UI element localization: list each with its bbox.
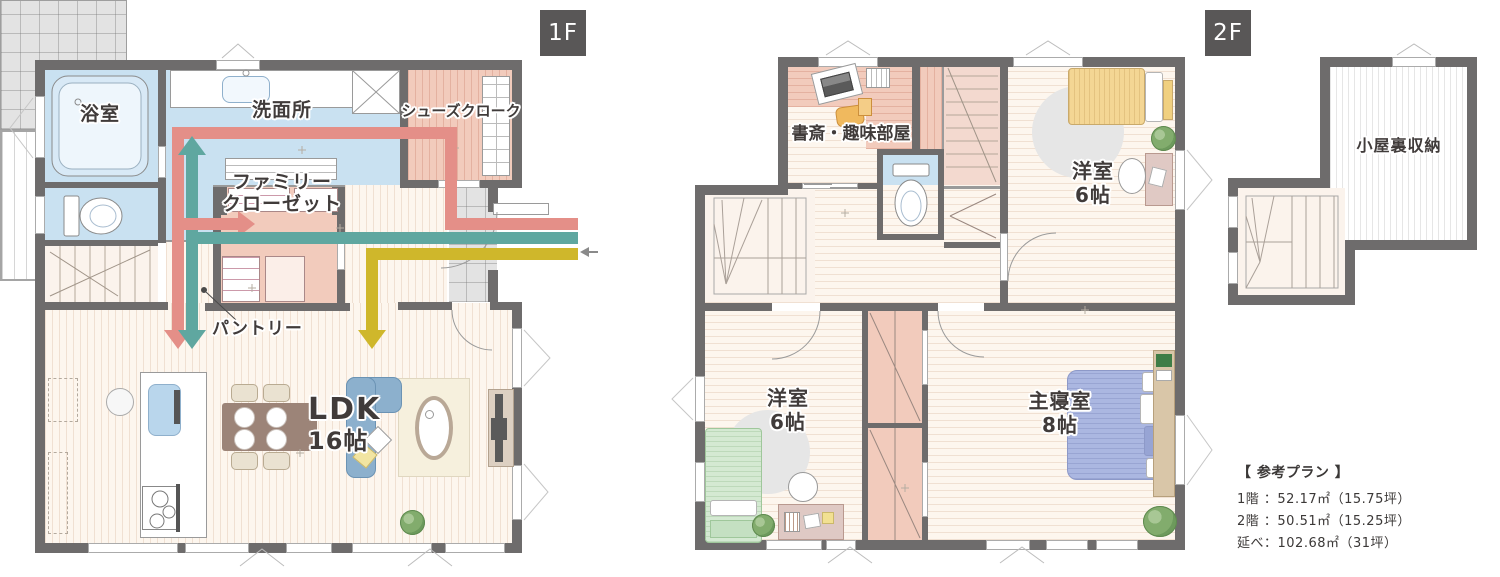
wall-line (944, 186, 1000, 189)
flow-arrow-pink (445, 218, 578, 230)
wall (398, 302, 452, 310)
pillow (1145, 72, 1163, 122)
room-bath (45, 70, 158, 182)
plate (266, 407, 287, 428)
plant-icon (400, 510, 425, 535)
window (185, 543, 249, 553)
chair (788, 472, 818, 502)
attic-stairs-floor (1330, 188, 1345, 240)
wall (1345, 245, 1355, 305)
window (35, 196, 45, 234)
sliding-door-gap (802, 183, 858, 189)
arrowhead-down-yellow (358, 330, 386, 349)
wall (877, 149, 944, 155)
window (1013, 57, 1083, 67)
wall (1345, 240, 1477, 250)
wall (912, 67, 920, 152)
bed-foot (710, 520, 757, 538)
room-label-pantry: パントリー (212, 319, 303, 339)
wall (1228, 178, 1330, 188)
headboard (1163, 80, 1173, 120)
console-plant (1156, 354, 1172, 367)
closet-2f (920, 67, 942, 149)
wall (877, 149, 883, 240)
wall (158, 185, 166, 243)
pantry-shelf (222, 256, 260, 302)
wall (984, 303, 1175, 311)
window (766, 540, 822, 550)
stairs-main-2f (705, 190, 815, 302)
floor-badge-2f: 2F (1205, 10, 1251, 56)
flow-arrow-yellow (366, 248, 578, 260)
wall (45, 240, 158, 246)
stove (142, 486, 180, 530)
console-item (1156, 370, 1172, 381)
window (1228, 252, 1238, 284)
room-label-master: 主寝室8帖 (1029, 390, 1092, 437)
flow-arrow-teal (186, 232, 578, 244)
storage-outline (48, 378, 78, 422)
room-toilet-1f (45, 185, 158, 240)
window (512, 465, 522, 520)
books (784, 512, 800, 532)
entrance-step (493, 203, 549, 215)
study-side-table (858, 98, 872, 116)
wall (868, 423, 922, 428)
wall (877, 234, 944, 240)
door-gap (158, 146, 166, 178)
plant-icon (1143, 506, 1177, 537)
reference-plan-line-1f: 1階 ：52.17㎡（15.75坪） (1237, 488, 1411, 507)
room-label-family-closet: ファミリークローゼット (222, 171, 342, 216)
plate (266, 429, 287, 450)
window (826, 540, 856, 550)
wall (205, 303, 350, 311)
plate (234, 407, 255, 428)
window (88, 543, 178, 553)
wall (35, 60, 522, 70)
paper (803, 513, 821, 530)
chair (1118, 158, 1146, 194)
washing-machine-pan (352, 70, 400, 114)
window (1175, 150, 1185, 210)
pillow (710, 500, 757, 516)
floorplan-canvas: 1F (0, 0, 1500, 577)
wall (35, 302, 168, 310)
window (1175, 415, 1185, 485)
window (445, 543, 505, 553)
entry-direction-arrow (580, 247, 589, 257)
wall (820, 303, 938, 311)
room-label-west-upper: 洋室6帖 (1072, 160, 1114, 207)
wall (938, 149, 944, 240)
window (512, 328, 522, 388)
dining-chair (263, 384, 290, 402)
wall (1320, 57, 1330, 188)
plate (234, 429, 255, 450)
room-label-attic: 小屋裏収納 (1356, 137, 1441, 156)
window (35, 96, 45, 158)
wall (45, 182, 158, 188)
closet-mid-lower (868, 428, 922, 540)
window (1228, 196, 1238, 228)
reference-plan-line-total: 延べ：102.68㎡（31坪） (1237, 532, 1398, 551)
floor-badge-1f: 1F (540, 10, 586, 56)
dining-chair (263, 452, 290, 470)
wall (488, 270, 498, 302)
pantry-shelf (265, 256, 305, 302)
window (695, 462, 705, 502)
storage-outline (48, 452, 68, 534)
flow-arrow-yellow (366, 248, 378, 332)
plant-icon (1151, 126, 1176, 151)
wall-line (942, 67, 944, 149)
room-label-study: 書斎・趣味部屋 (792, 124, 911, 144)
wall (512, 60, 522, 188)
door-gap (1000, 233, 1008, 281)
room-label-washroom: 洗面所 (252, 99, 312, 121)
flow-arrow-pink (445, 127, 457, 230)
flow-arrow-pink (172, 127, 184, 332)
coffee-table (415, 396, 453, 460)
arrowhead-down-teal (178, 330, 206, 349)
door-gap (922, 462, 928, 517)
bed-single (1068, 68, 1145, 125)
wall (695, 185, 788, 195)
wall (1228, 295, 1355, 305)
window (352, 543, 432, 553)
plant-icon (752, 514, 775, 537)
window (216, 60, 260, 70)
wall (1467, 57, 1477, 250)
flow-arrow-pink-branch (184, 218, 238, 230)
wall (695, 303, 772, 311)
door-gap (922, 330, 928, 385)
reference-plan-title: 【 参考プラン 】 (1237, 462, 1349, 482)
reference-plan-line-2f: 2階 ：50.51㎡（15.25坪） (1237, 510, 1411, 529)
room-label-west-lower: 洋室6帖 (767, 387, 809, 434)
shoe-shelf (482, 76, 510, 176)
dining-chair (231, 452, 258, 470)
room-label-ldk: LDK 16帖 (308, 392, 381, 456)
flow-arrow-pink (172, 127, 457, 139)
window (986, 540, 1030, 550)
window (286, 543, 332, 553)
window (695, 376, 705, 422)
faucet (174, 390, 180, 424)
study-shelf (866, 68, 890, 88)
wall (778, 57, 788, 188)
closet-mid-upper (868, 311, 922, 423)
window (1046, 540, 1088, 550)
window (1096, 540, 1138, 550)
attic-stairs-floor (1238, 188, 1345, 295)
stairs-upper-2f (944, 63, 1000, 185)
tv-base (491, 418, 507, 440)
room-label-shoe-closet: シューズクローク (401, 103, 520, 121)
room-label-bath: 浴室 (80, 103, 120, 125)
person-figure (106, 388, 134, 416)
note (822, 512, 834, 524)
cup (425, 410, 434, 419)
wall (944, 242, 1006, 248)
dining-chair (231, 384, 258, 402)
room-stairs-1f (45, 246, 158, 302)
stove-edge (176, 484, 180, 532)
wall (490, 302, 522, 310)
entry-direction-arrow-tail (589, 251, 598, 253)
window (1392, 57, 1436, 67)
arrowhead-up-teal (178, 136, 206, 155)
